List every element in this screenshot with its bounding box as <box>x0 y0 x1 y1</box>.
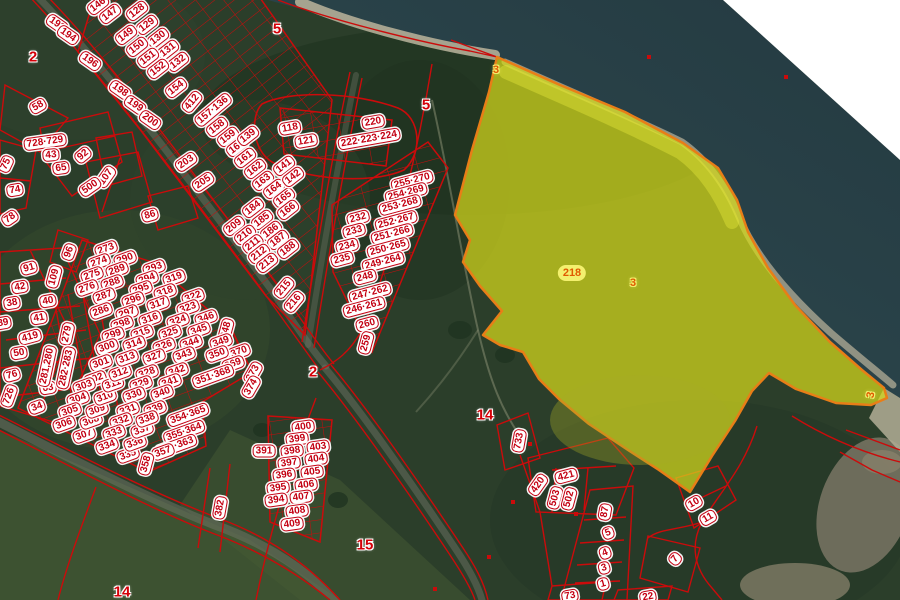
parcel-number-label: 10 <box>683 493 704 513</box>
parcel-number-label: 200 <box>137 108 163 132</box>
cadastral-map-stage[interactable]: 1931941961981992001461471281291301311321… <box>0 0 900 600</box>
parcel-number-label: 92 <box>72 145 93 166</box>
parcel-number-label: 421 <box>553 467 578 485</box>
parcel-number-label: 419 <box>17 328 42 346</box>
zone-number-label: 2 <box>309 364 317 381</box>
zone-number-label: 14 <box>114 584 131 600</box>
parcel-number-label: 286 <box>88 301 114 321</box>
parcel-number-label: 407 <box>289 489 313 505</box>
parcel-number-label: 306 <box>51 414 77 434</box>
parcel-number-label: 87 <box>597 502 613 521</box>
parcel-number-label: 154 <box>163 76 189 100</box>
parcel-number-label: 7 <box>666 550 683 567</box>
parcel-number-label: 235 <box>329 250 354 268</box>
parcel-number-label: 65 <box>52 160 71 175</box>
parcel-number-label: 38 <box>2 295 21 311</box>
parcel-number-label: 75 <box>0 153 16 174</box>
parcel-number-label: 203 <box>173 150 199 174</box>
parcel-number-label: 279 <box>58 322 75 347</box>
parcel-number-label: 96 <box>60 242 78 263</box>
highlighted-parcel-label: 3 <box>630 277 636 289</box>
parcel-number-label: 34 <box>27 398 48 416</box>
parcel-number-label: 40 <box>38 293 57 309</box>
zone-number-label: 2 <box>29 49 37 66</box>
parcel-number-label: 121 <box>294 133 319 150</box>
parcel-number-label: 11 <box>698 508 719 528</box>
parcel-number-label: 22 <box>638 589 657 600</box>
parcel-number-label: 205 <box>190 170 216 194</box>
parcel-number-label: 74 <box>5 182 24 198</box>
parcel-number-label: 41 <box>29 310 48 326</box>
parcel-number-label: 420 <box>526 472 550 498</box>
parcel-number-label: 89 <box>0 315 13 331</box>
parcel-number-label: 86 <box>140 207 160 224</box>
parcel-number-label: 4 <box>597 545 612 561</box>
parcel-number-label: 382 <box>212 496 229 521</box>
parcel-number-label: 351·368 <box>191 363 236 390</box>
zone-number-label: 5 <box>273 21 281 38</box>
parcel-number-label: 91 <box>19 260 39 277</box>
parcel-number-label: 259 <box>357 330 375 355</box>
parcel-number-label: 5 <box>600 525 615 541</box>
parcel-number-label: 58 <box>27 96 48 116</box>
parcel-number-label: 394 <box>264 492 288 508</box>
parcel-number-label: 78 <box>0 208 21 228</box>
labels-layer: 1931941961981992001461471281291301311321… <box>0 0 900 600</box>
parcel-number-label: 76 <box>2 367 22 384</box>
zone-number-label: 14 <box>477 407 494 424</box>
parcel-number-label: 50 <box>9 345 28 361</box>
parcel-number-label: 196 <box>77 49 103 73</box>
parcel-number-label: 260 <box>354 315 379 333</box>
parcel-number-label: 733 <box>511 429 528 454</box>
parcel-number-label: 248 <box>352 268 377 286</box>
parcel-number-label: 118 <box>278 120 302 137</box>
parcel-number-label: 409 <box>280 516 304 532</box>
parcel-number-label: 391 <box>253 445 276 458</box>
parcel-number-label: 3 <box>597 560 612 576</box>
highlighted-parcel-label: 3 <box>865 391 878 399</box>
parcel-number-label: 220 <box>361 114 386 131</box>
parcel-number-label: 43 <box>42 148 60 162</box>
parcel-number-label: 42 <box>10 279 29 295</box>
zone-number-label: 5 <box>422 97 430 114</box>
highlighted-parcel-label: 218 <box>560 267 584 279</box>
parcel-number-label: 726 <box>0 383 19 409</box>
parcel-number-label: 73 <box>560 588 579 600</box>
parcel-number-label: 1 <box>596 576 611 592</box>
zone-number-label: 15 <box>357 537 374 554</box>
parcel-number-label: 194 <box>55 23 81 47</box>
parcel-number-label: 222·223·224 <box>337 127 401 151</box>
parcel-number-label: 109 <box>45 264 63 289</box>
highlighted-parcel-label: 3 <box>493 64 499 76</box>
